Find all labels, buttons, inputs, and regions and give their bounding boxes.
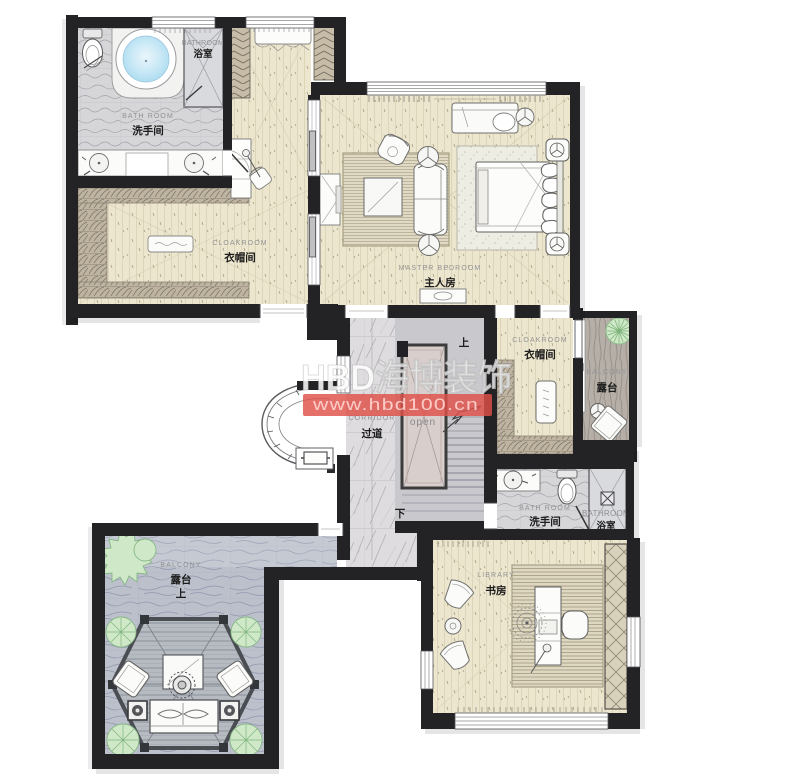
svg-text:上: 上 bbox=[176, 587, 187, 600]
svg-text:CLOAKROOM: CLOAKROOM bbox=[212, 240, 267, 247]
svg-text:BALCONY: BALCONY bbox=[160, 562, 201, 569]
svg-text:过道: 过道 bbox=[362, 427, 383, 440]
svg-text:BATHROOM: BATHROOM bbox=[582, 509, 630, 518]
svg-text:BALCONY: BALCONY bbox=[586, 369, 627, 376]
svg-text:CLOAKROOM: CLOAKROOM bbox=[512, 337, 567, 344]
svg-text:CORRIDOR: CORRIDOR bbox=[349, 415, 396, 422]
svg-text:露台: 露台 bbox=[597, 381, 618, 394]
svg-text:下: 下 bbox=[395, 508, 406, 520]
svg-text:HBD海博装饰: HBD海博装饰 bbox=[301, 357, 512, 398]
svg-text:www.hbd100.cn: www.hbd100.cn bbox=[312, 395, 479, 414]
svg-text:露台: 露台 bbox=[171, 573, 192, 586]
svg-text:衣帽间: 衣帽间 bbox=[224, 251, 256, 264]
svg-text:洗手间: 洗手间 bbox=[132, 124, 164, 137]
svg-text:书房: 书房 bbox=[486, 584, 507, 597]
svg-text:浴室: 浴室 bbox=[193, 48, 213, 60]
svg-text:上: 上 bbox=[459, 336, 470, 349]
svg-text:衣帽间: 衣帽间 bbox=[524, 348, 556, 361]
svg-text:BATH ROOM: BATH ROOM bbox=[519, 505, 571, 512]
svg-text:MASTER BEDROOM: MASTER BEDROOM bbox=[399, 265, 482, 272]
svg-text:洗手间: 洗手间 bbox=[529, 515, 561, 528]
svg-text:主人房: 主人房 bbox=[424, 276, 456, 289]
svg-text:open: open bbox=[410, 417, 436, 428]
svg-text:BATHROOM: BATHROOM bbox=[182, 40, 224, 47]
svg-text:BATH ROOM: BATH ROOM bbox=[122, 113, 174, 120]
svg-text:LIBRARY: LIBRARY bbox=[477, 572, 515, 579]
